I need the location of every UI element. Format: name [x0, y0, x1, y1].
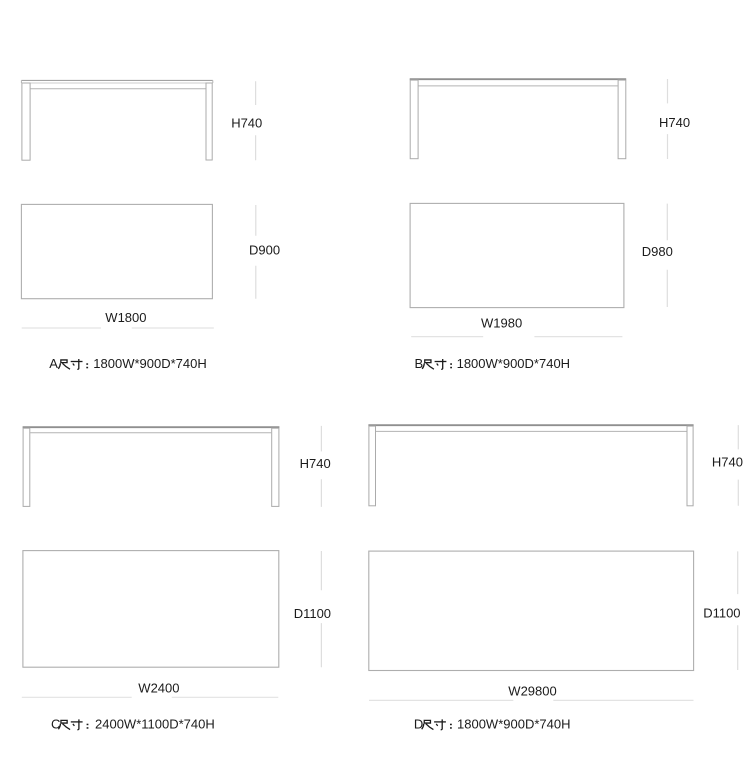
svg-text:D900: D900: [249, 243, 280, 258]
svg-text:1800W*900D*740H: 1800W*900D*740H: [457, 717, 570, 732]
svg-text:W2400: W2400: [138, 681, 179, 696]
svg-text:D1100: D1100: [703, 605, 740, 620]
svg-text:H740: H740: [231, 115, 262, 130]
svg-text:D1100: D1100: [294, 606, 331, 621]
svg-text:H740: H740: [659, 115, 690, 130]
svg-text:1800W*900D*740H: 1800W*900D*740H: [457, 356, 570, 371]
svg-text:1800W*900D*740H: 1800W*900D*740H: [93, 356, 206, 371]
svg-text:A: A: [49, 356, 58, 371]
svg-text:W29800: W29800: [508, 684, 556, 699]
svg-text:W1800: W1800: [105, 310, 146, 325]
svg-text:B: B: [415, 356, 424, 371]
svg-text:D980: D980: [642, 244, 673, 259]
svg-text:H740: H740: [300, 456, 331, 471]
svg-text:2400W*1100D*740H: 2400W*1100D*740H: [95, 717, 215, 732]
svg-text:H740: H740: [712, 455, 743, 470]
svg-text:W1980: W1980: [481, 316, 522, 331]
